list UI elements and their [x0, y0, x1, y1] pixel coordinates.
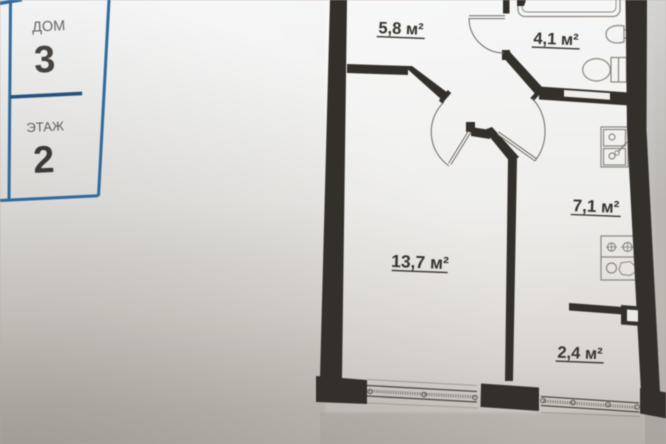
- svg-text:13,7 м²: 13,7 м²: [391, 251, 450, 273]
- svg-text:7,1 м²: 7,1 м²: [572, 196, 620, 217]
- svg-text:5,8 м²: 5,8 м²: [378, 19, 424, 39]
- svg-text:3: 3: [33, 39, 56, 82]
- svg-text:2: 2: [32, 139, 55, 182]
- svg-text:ЭТАЖ: ЭТАЖ: [26, 118, 64, 135]
- svg-text:2,4 м²: 2,4 м²: [557, 344, 603, 364]
- svg-text:4,1 м²: 4,1 м²: [533, 30, 579, 50]
- svg-text:ДОМ: ДОМ: [32, 18, 66, 35]
